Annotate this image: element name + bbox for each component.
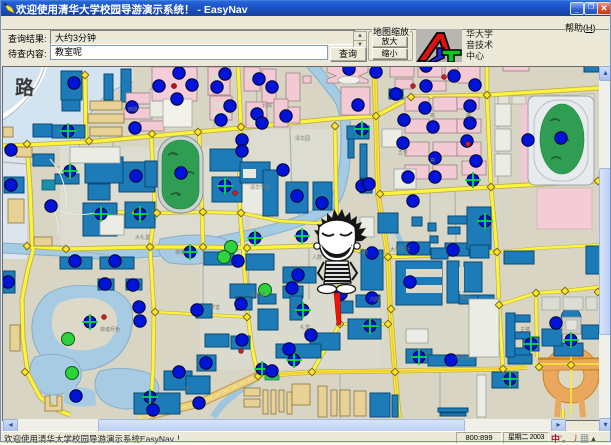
svg-text:清华园: 清华园 xyxy=(295,135,310,142)
svg-text:大礼堂: 大礼堂 xyxy=(135,234,150,241)
svg-text:北院: 北院 xyxy=(262,102,272,109)
svg-text:人群: 人群 xyxy=(312,254,322,261)
svg-text:礼堂: 礼堂 xyxy=(300,324,310,331)
svg-text:荷塘: 荷塘 xyxy=(175,249,185,256)
svg-text:内院: 内院 xyxy=(370,296,380,303)
svg-text:东区: 东区 xyxy=(460,294,470,301)
svg-text:馆: 馆 xyxy=(184,386,189,393)
svg-text:斋: 斋 xyxy=(430,157,435,164)
svg-text:大学生活: 大学生活 xyxy=(390,246,410,253)
svg-text:五号: 五号 xyxy=(398,150,408,156)
svg-text:主楼: 主楼 xyxy=(520,326,530,333)
svg-text:西院: 西院 xyxy=(128,106,138,113)
svg-text:图书馆: 图书馆 xyxy=(250,291,265,298)
svg-text:清华学堂: 清华学堂 xyxy=(250,184,270,191)
svg-text:路: 路 xyxy=(15,76,35,99)
svg-text:學堂: 學堂 xyxy=(210,304,220,311)
svg-text:斋: 斋 xyxy=(466,112,471,119)
svg-text:荷塘月色: 荷塘月色 xyxy=(100,326,120,333)
svg-text:学生区: 学生区 xyxy=(455,354,470,361)
svg-text:三教: 三教 xyxy=(358,249,368,256)
svg-text:斋: 斋 xyxy=(430,112,435,119)
